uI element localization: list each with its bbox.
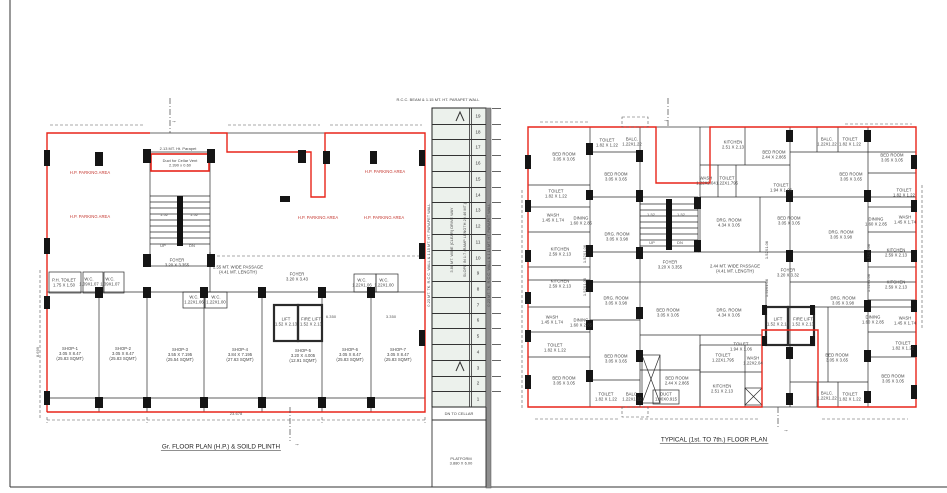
ramp-tick bbox=[492, 139, 501, 140]
room-label: DRG. ROOM3.05 X 3.98 bbox=[830, 296, 855, 306]
ramp-step-line bbox=[432, 265, 486, 266]
room-label: DINING1.60 X 2.85 bbox=[865, 217, 887, 227]
shaft-label: 1.52X1.06 bbox=[765, 241, 770, 259]
label-layer: R.C.C. BEAM & 1.15 MT. HT. PARAPET WALL … bbox=[0, 0, 947, 493]
lift-label: LIFT1.52 X 2.13 bbox=[767, 317, 789, 327]
dimension: 6.350 bbox=[326, 315, 336, 320]
room-label: WASH1.45 X 1.74 bbox=[894, 215, 916, 225]
stair-width-dim: 1.52 bbox=[677, 213, 685, 218]
ramp-step-line bbox=[432, 155, 486, 156]
shop-label: SHOP-43.84 X 7.195(27.63 SQMT) bbox=[226, 348, 253, 363]
room-label: BALC.1.22X1.22 bbox=[622, 392, 642, 402]
shop-label: SHOP-33.55 X 7.195(25.54 SQMT) bbox=[166, 348, 193, 363]
room-label: WASH1.22X2.04 bbox=[696, 176, 716, 186]
ramp-step-number: 8 bbox=[477, 286, 480, 291]
ramp-step-number: 7 bbox=[477, 302, 480, 307]
room-label: BALC.1.22X1.22 bbox=[622, 137, 642, 147]
room-label: DRG. ROOM3.05 X 3.98 bbox=[604, 232, 629, 242]
ramp-tick bbox=[492, 187, 501, 188]
room-label: KITCHEN2.59 X 2.13 bbox=[885, 248, 907, 258]
room-label: W.C.1.09X1.07 bbox=[79, 277, 99, 287]
room-label: BED ROOM3.05 X 3.05 bbox=[656, 308, 679, 318]
ramp-step-number: 11 bbox=[476, 239, 481, 244]
room-label: FOYER3.20 X 3.32 bbox=[777, 268, 799, 278]
shop-label: SHOP-63.05 X 8.47(25.83 SQMT) bbox=[336, 348, 363, 363]
ramp-step-number: 10 bbox=[475, 255, 480, 260]
parking-area-label: H.P. PARKING AREA bbox=[365, 170, 405, 175]
parking-area-label: H.P. PARKING AREA bbox=[70, 215, 110, 220]
room-label: TOILET1.82 X 1.22 bbox=[545, 189, 567, 199]
room-label: DRG. ROOM4.34 X 3.05 bbox=[716, 218, 741, 228]
section-marker: → bbox=[171, 118, 177, 124]
room-label: BALC.1.22X1.22 bbox=[817, 391, 837, 401]
dimension: 8.699 bbox=[36, 347, 41, 357]
room-label: W.C.1.09X1.07 bbox=[100, 277, 120, 287]
room-label: FOYER3.20 X 3.355 bbox=[165, 258, 189, 268]
room-label: DRG. ROOM4.34 X 3.05 bbox=[716, 308, 741, 318]
room-label: TOILET1.82 X 1.22 bbox=[596, 138, 618, 148]
ramp-step-line bbox=[432, 187, 486, 188]
room-label: BED ROOM3.05 X 3.65 bbox=[604, 354, 627, 364]
room-label: DRG. ROOM3.05 X 3.98 bbox=[603, 296, 628, 306]
ramp-tick bbox=[492, 171, 501, 172]
room-label: TOILET1.82 X 1.22 bbox=[892, 341, 914, 351]
stair-width-dim: 1.52 bbox=[647, 213, 655, 218]
room-label: TOILET1.82 X 1.22 bbox=[839, 137, 861, 147]
ramp-step-line bbox=[432, 328, 486, 329]
ramp-step-number: 16 bbox=[475, 161, 480, 166]
ramp-tick bbox=[492, 250, 501, 251]
room-label: BED ROOM3.05 X 3.65 bbox=[839, 172, 862, 182]
parking-area-label: H.P. PARKING AREA bbox=[298, 216, 338, 221]
room-label: TOILET1.22X1.795 bbox=[712, 353, 734, 363]
ramp-tick bbox=[492, 281, 501, 282]
floor-plan-sheet: R.C.C. BEAM & 1.15 MT. HT. PARAPET WALL … bbox=[0, 0, 947, 493]
shop-label: SHOP-13.05 X 8.47(25.83 SQMT) bbox=[56, 347, 83, 362]
stair-up-label: UP bbox=[649, 241, 655, 246]
ramp-note: DN TO CELLAR bbox=[445, 412, 474, 417]
room-label: W.C.1.22X1.00 bbox=[206, 295, 226, 305]
room-label: P.H. TOILET1.75 X 1.50 bbox=[52, 278, 76, 288]
room-label: BED ROOM2.44 X 2.865 bbox=[665, 376, 689, 386]
right-plan-title: TYPICAL (1st. TO 7th.) FLOOR PLAN bbox=[660, 436, 768, 444]
room-label: W.C.1.22X1.06 bbox=[184, 295, 204, 305]
ramp-step-line bbox=[432, 391, 486, 392]
stair-dn-label: DN bbox=[189, 244, 195, 249]
fire-lift-label: FIRE LIFT1.52 X 2.13 bbox=[300, 317, 322, 327]
shaft-label: 1.52X1.06 bbox=[867, 244, 872, 262]
section-marker: → bbox=[663, 117, 669, 123]
ramp-step-number: 5 bbox=[477, 334, 480, 339]
room-label: W.C.1.22X1.06 bbox=[352, 278, 372, 288]
stair-width-dim: 1.52 bbox=[160, 213, 168, 218]
passage-label: 2.44 MT. WIDE PASSAGE(4.41 MT. LENGTH) bbox=[710, 264, 760, 274]
ramp-step-number: 1 bbox=[477, 397, 480, 402]
ramp-step-line bbox=[432, 250, 486, 251]
room-label: DINING1.60 X 2.85 bbox=[862, 315, 884, 325]
room-label: BED ROOM3.05 X 3.65 bbox=[604, 172, 627, 182]
ramp-step-line bbox=[432, 202, 486, 203]
room-label: TOILET1.94 X 1.06 bbox=[730, 342, 752, 352]
room-label: FOYER3.20 X 3.43 bbox=[286, 272, 308, 282]
room-label: BED ROOM3.05 X 3.65 bbox=[825, 353, 848, 363]
left-plan-title: Gr. FLOOR PLAN (H.P.) & SOILD PLINTH bbox=[161, 443, 281, 451]
room-label: TOILET1.22X1.795 bbox=[716, 176, 738, 186]
room-label: BED ROOM2.44 X 2.865 bbox=[762, 150, 786, 160]
room-label: BED ROOM3.05 X 3.05 bbox=[881, 374, 904, 384]
ramp-step-number: 12 bbox=[475, 224, 480, 229]
ramp-step-number: 13 bbox=[475, 208, 480, 213]
ramp-tick bbox=[492, 328, 501, 329]
parapet-note: 2.13 MT. Ht. Parapet bbox=[160, 147, 197, 152]
shop-label: SHOP-73.05 X 8.47(25.83 SQMT) bbox=[384, 348, 411, 363]
wall-note: 0.23 MT. TK. R.C.C. WALL & 1.15 MT. HT. … bbox=[487, 203, 491, 306]
ramp-tick bbox=[492, 124, 501, 125]
ramp-step-line bbox=[432, 234, 486, 235]
ramp-step-line bbox=[432, 171, 486, 172]
ramp-header-label: R.C.C. BEAM & 1.15 MT. HT. PARAPET WALL bbox=[397, 98, 480, 103]
room-label: TOILET1.82 X 1.22 bbox=[544, 343, 566, 353]
ramp-tick bbox=[492, 202, 501, 203]
shaft-label: 1.52X1.06 bbox=[583, 245, 588, 263]
room-label: KITCHEN2.51 X 2.13 bbox=[711, 384, 733, 394]
ramp-step-number: 3 bbox=[477, 365, 480, 370]
duct-label: DUCT1.00X0.915 bbox=[655, 392, 677, 402]
passage-label: 2.55 MT. WIDE PASSAGE(4.41 MT. LENGTH) bbox=[213, 265, 263, 275]
ramp-tick bbox=[492, 344, 501, 345]
ramp-tick bbox=[492, 391, 501, 392]
room-label: KITCHEN2.59 X 2.13 bbox=[549, 247, 571, 257]
ramp-step-number: 2 bbox=[477, 381, 480, 386]
shop-label: SHOP-23.05 X 8.47(25.83 SQMT) bbox=[109, 347, 136, 362]
ramp-step-line bbox=[432, 297, 486, 298]
shaft-label: 1.52X1.06 bbox=[867, 274, 872, 292]
shop-label: SHOP-53.20 X 4.005(12.91 SQMT) bbox=[289, 349, 316, 364]
ramp-tick bbox=[492, 360, 501, 361]
shaft-label: 1.52X1.06 bbox=[583, 278, 588, 296]
stair-dn-label: DN bbox=[677, 241, 683, 246]
room-label: KITCHEN2.59 X 2.13 bbox=[885, 280, 907, 290]
ramp-step-line bbox=[432, 218, 486, 219]
room-label: BED ROOM3.05 X 3.05 bbox=[552, 152, 575, 162]
stair-up-label: UP bbox=[160, 244, 166, 249]
ramp-step-line bbox=[432, 124, 486, 125]
dimension: 23.678 bbox=[230, 412, 243, 417]
room-label: WASH1.45 X 1.74 bbox=[894, 316, 916, 326]
ramp-step-line bbox=[432, 281, 486, 282]
ramp-tick bbox=[492, 218, 501, 219]
platform-label: PLATFORM3.880 X 6.00 bbox=[450, 456, 473, 465]
room-label: TOILET1.82 X 1.22 bbox=[893, 188, 915, 198]
room-label: DINING1.60 X 2.85 bbox=[570, 318, 592, 328]
stair-width-dim: 1.52 bbox=[190, 213, 198, 218]
room-label: BED ROOM3.05 X 3.05 bbox=[880, 153, 903, 163]
ramp-tick bbox=[492, 376, 501, 377]
ramp-step-number: 19 bbox=[475, 113, 480, 118]
ramp-step-number: 15 bbox=[475, 176, 480, 181]
room-label: FOYER3.20 X 3.355 bbox=[658, 260, 682, 270]
ramp-tick bbox=[492, 234, 501, 235]
ramp-tick bbox=[492, 313, 501, 314]
ramp-step-number: 17 bbox=[475, 145, 480, 150]
ramp-step-number: 18 bbox=[475, 129, 480, 134]
ramp-step-line bbox=[432, 344, 486, 345]
dimension: 3.350 bbox=[386, 315, 396, 320]
room-label: WASH1.22X2.04 bbox=[743, 356, 763, 366]
room-label: DRG. ROOM3.05 X 3.98 bbox=[828, 230, 853, 240]
wall-note: 0.23 MT. TK. R.C.C. WALL & 1.15 MT. HT. … bbox=[427, 203, 431, 306]
ramp-step-line bbox=[432, 376, 486, 377]
ramp-step-number: 9 bbox=[477, 271, 480, 276]
ramp-tick bbox=[492, 297, 501, 298]
ramp-tick bbox=[492, 265, 501, 266]
section-marker: → bbox=[783, 427, 789, 433]
room-label: WASH1.45 X 1.74 bbox=[542, 213, 564, 223]
ramp-step-line bbox=[432, 313, 486, 314]
ramp-step-line bbox=[432, 360, 486, 361]
section-marker: → bbox=[294, 441, 300, 447]
ramp-tick bbox=[492, 155, 501, 156]
ramp-step-line bbox=[432, 139, 486, 140]
room-label: TOILET1.82 X 1.22 bbox=[839, 392, 861, 402]
room-label: BALC.1.22X1.22 bbox=[817, 137, 837, 147]
room-label: BED ROOM3.05 X 3.05 bbox=[777, 216, 800, 226]
ramp-step-number: 14 bbox=[475, 192, 480, 197]
room-label: BED ROOM3.05 X 3.05 bbox=[552, 376, 575, 386]
room-label: KITCHEN2.51 X 2.13 bbox=[722, 140, 744, 150]
room-label: TOILET1.82 X 1.22 bbox=[595, 392, 617, 402]
room-label: KITCHEN2.59 X 2.13 bbox=[549, 279, 571, 289]
shaft-label: 1.52X1.06 bbox=[765, 279, 770, 297]
parking-area-label: H.P. PARKING AREA bbox=[364, 216, 404, 221]
room-label: W.C.1.22X1.00 bbox=[374, 278, 394, 288]
lift-label: LIFT1.52 X 2.13 bbox=[275, 317, 297, 327]
parking-area-label: H.P. PARKING AREA bbox=[70, 171, 110, 176]
fire-lift-label: FIRE LIFT1.52 X 2.13 bbox=[792, 317, 814, 327]
duct-note: Duct for Cellar Vent2.390 x 0.60 bbox=[163, 158, 198, 167]
room-label: WASH1.45 X 1.74 bbox=[541, 315, 563, 325]
ramp-tick bbox=[492, 108, 501, 109]
room-label: DINING1.60 X 2.85 bbox=[570, 216, 592, 226]
ramp-step-number: 4 bbox=[477, 349, 480, 354]
room-label: TOILET1.94 X 1.06 bbox=[770, 183, 792, 193]
ramp-step-number: 6 bbox=[477, 318, 480, 323]
